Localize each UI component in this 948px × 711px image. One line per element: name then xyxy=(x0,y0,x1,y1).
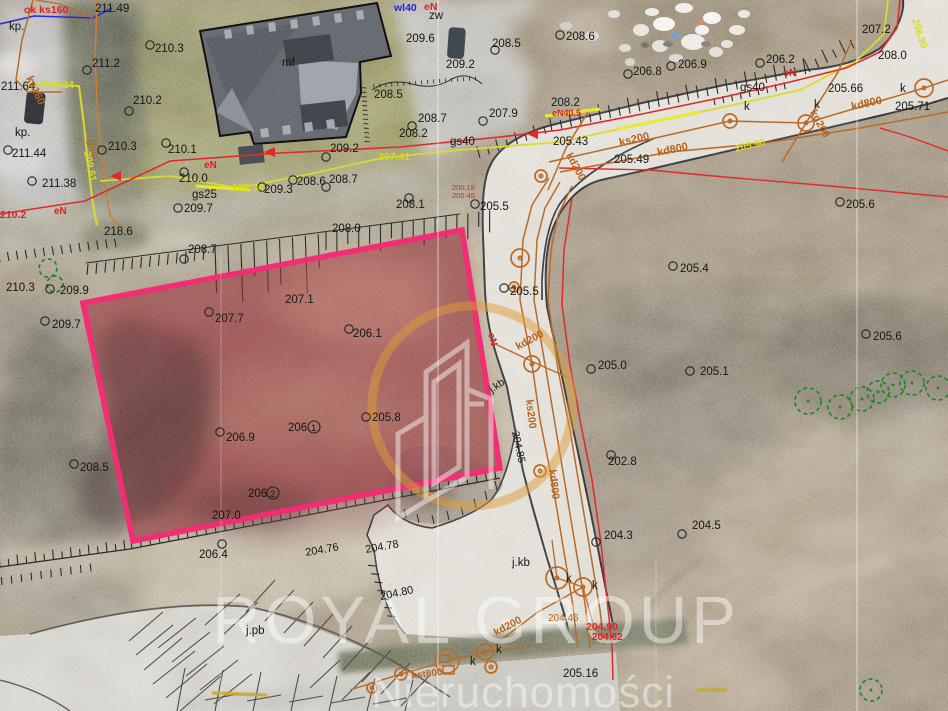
svg-text:205.5: 205.5 xyxy=(510,286,539,298)
svg-text:208.7: 208.7 xyxy=(329,174,358,186)
svg-text:211.44: 211.44 xyxy=(12,148,47,160)
svg-text:209.9: 209.9 xyxy=(60,285,89,297)
svg-text:206.1: 206.1 xyxy=(353,328,382,340)
svg-text:210.3: 210.3 xyxy=(6,282,35,294)
svg-text:eN: eN xyxy=(783,67,796,79)
svg-text:205.0: 205.0 xyxy=(598,360,627,372)
svg-text:209.3: 209.3 xyxy=(264,184,293,196)
svg-text:210.24: 210.24 xyxy=(42,79,74,91)
svg-text:208.7: 208.7 xyxy=(418,113,447,125)
svg-text:gs40: gs40 xyxy=(450,136,475,148)
svg-text:207.2: 207.2 xyxy=(862,24,891,36)
svg-text:208.2: 208.2 xyxy=(399,128,428,140)
svg-text:eN: eN xyxy=(204,160,217,171)
svg-text:205.66: 205.66 xyxy=(828,83,863,95)
svg-text:ok ks160: ok ks160 xyxy=(24,4,69,16)
svg-text:205.16: 205.16 xyxy=(563,668,598,680)
svg-text:eN: eN xyxy=(424,1,437,13)
svg-text:205.6: 205.6 xyxy=(846,199,875,211)
svg-text:208.5: 208.5 xyxy=(492,38,521,50)
svg-text:207.41: 207.41 xyxy=(378,151,410,163)
svg-text:208.6: 208.6 xyxy=(566,31,595,43)
svg-text:200.45: 200.45 xyxy=(452,191,475,200)
svg-text:1: 1 xyxy=(311,423,316,434)
svg-text:208.7: 208.7 xyxy=(188,244,217,256)
svg-text:208.0: 208.0 xyxy=(332,223,361,235)
svg-text:204.62: 204.62 xyxy=(592,632,623,643)
svg-text:209.7: 209.7 xyxy=(184,203,213,215)
svg-text:k: k xyxy=(496,644,502,656)
svg-text:210.2: 210.2 xyxy=(0,209,26,221)
svg-text:2: 2 xyxy=(270,489,275,500)
svg-text:205.49: 205.49 xyxy=(614,154,649,166)
svg-text:207.9: 207.9 xyxy=(489,108,518,120)
svg-text:205.5: 205.5 xyxy=(480,201,509,213)
svg-text:205.8: 205.8 xyxy=(372,412,401,424)
svg-text:218.6: 218.6 xyxy=(104,226,133,238)
svg-text:k: k xyxy=(470,656,476,668)
svg-text:210.1: 210.1 xyxy=(168,144,197,156)
svg-text:204.3: 204.3 xyxy=(604,530,633,542)
svg-text:207.1: 207.1 xyxy=(285,294,314,306)
svg-text:208.34: 208.34 xyxy=(232,182,264,194)
svg-text:202.8: 202.8 xyxy=(608,456,637,468)
svg-text:208.5: 208.5 xyxy=(374,89,403,101)
svg-text:207.0: 207.0 xyxy=(212,510,241,522)
svg-text:eN40.5: eN40.5 xyxy=(552,108,581,118)
svg-text:209.2: 209.2 xyxy=(330,143,359,155)
svg-text:ROYAL GROUP: ROYAL GROUP xyxy=(212,583,740,658)
svg-text:205.6: 205.6 xyxy=(873,331,902,343)
svg-text:210.3: 210.3 xyxy=(155,43,184,55)
svg-text:gs25: gs25 xyxy=(192,189,217,201)
svg-text:k: k xyxy=(900,83,906,95)
svg-text:206.2: 206.2 xyxy=(766,54,795,66)
svg-text:204.46: 204.46 xyxy=(548,613,579,624)
svg-text:wl40: wl40 xyxy=(393,2,417,14)
svg-text:206.8: 206.8 xyxy=(633,66,662,78)
svg-text:211.2: 211.2 xyxy=(92,58,120,70)
svg-text:j.kb: j.kb xyxy=(511,557,530,569)
svg-text:209.6: 209.6 xyxy=(406,33,435,45)
svg-text:205.71: 205.71 xyxy=(895,101,930,113)
svg-text:k: k xyxy=(566,573,572,585)
svg-text:208.5: 208.5 xyxy=(80,462,109,474)
svg-text:210.0: 210.0 xyxy=(179,173,208,185)
svg-text:206.9: 206.9 xyxy=(678,59,707,71)
svg-text:eN: eN xyxy=(54,206,67,217)
svg-text:208.1: 208.1 xyxy=(396,199,425,211)
svg-text:209.2: 209.2 xyxy=(446,59,475,71)
svg-text:206.9: 206.9 xyxy=(226,432,255,444)
svg-text:210.2: 210.2 xyxy=(133,95,162,107)
svg-text:210.3: 210.3 xyxy=(108,141,137,153)
svg-text:206.: 206. xyxy=(288,422,310,434)
svg-text:205.43: 205.43 xyxy=(553,136,588,148)
svg-text:gs40: gs40 xyxy=(740,82,765,94)
svg-text:209.7: 209.7 xyxy=(52,319,81,331)
svg-text:j.pb: j.pb xyxy=(245,625,265,637)
svg-text:207.7: 207.7 xyxy=(215,313,244,325)
svg-text:206.4: 206.4 xyxy=(199,549,228,561)
svg-text:211.38: 211.38 xyxy=(42,178,76,190)
svg-text:k: k xyxy=(744,101,750,113)
svg-text:204.5: 204.5 xyxy=(692,520,721,532)
svg-text:kp.: kp. xyxy=(9,21,24,33)
svg-text:208.0: 208.0 xyxy=(878,50,907,62)
svg-text:kp.: kp. xyxy=(15,127,30,139)
svg-text:mf: mf xyxy=(282,57,296,69)
svg-text:211.49: 211.49 xyxy=(95,3,129,15)
svg-text:k: k xyxy=(592,580,598,592)
svg-text:205.4: 205.4 xyxy=(680,263,709,275)
svg-text:205.1: 205.1 xyxy=(700,366,729,378)
